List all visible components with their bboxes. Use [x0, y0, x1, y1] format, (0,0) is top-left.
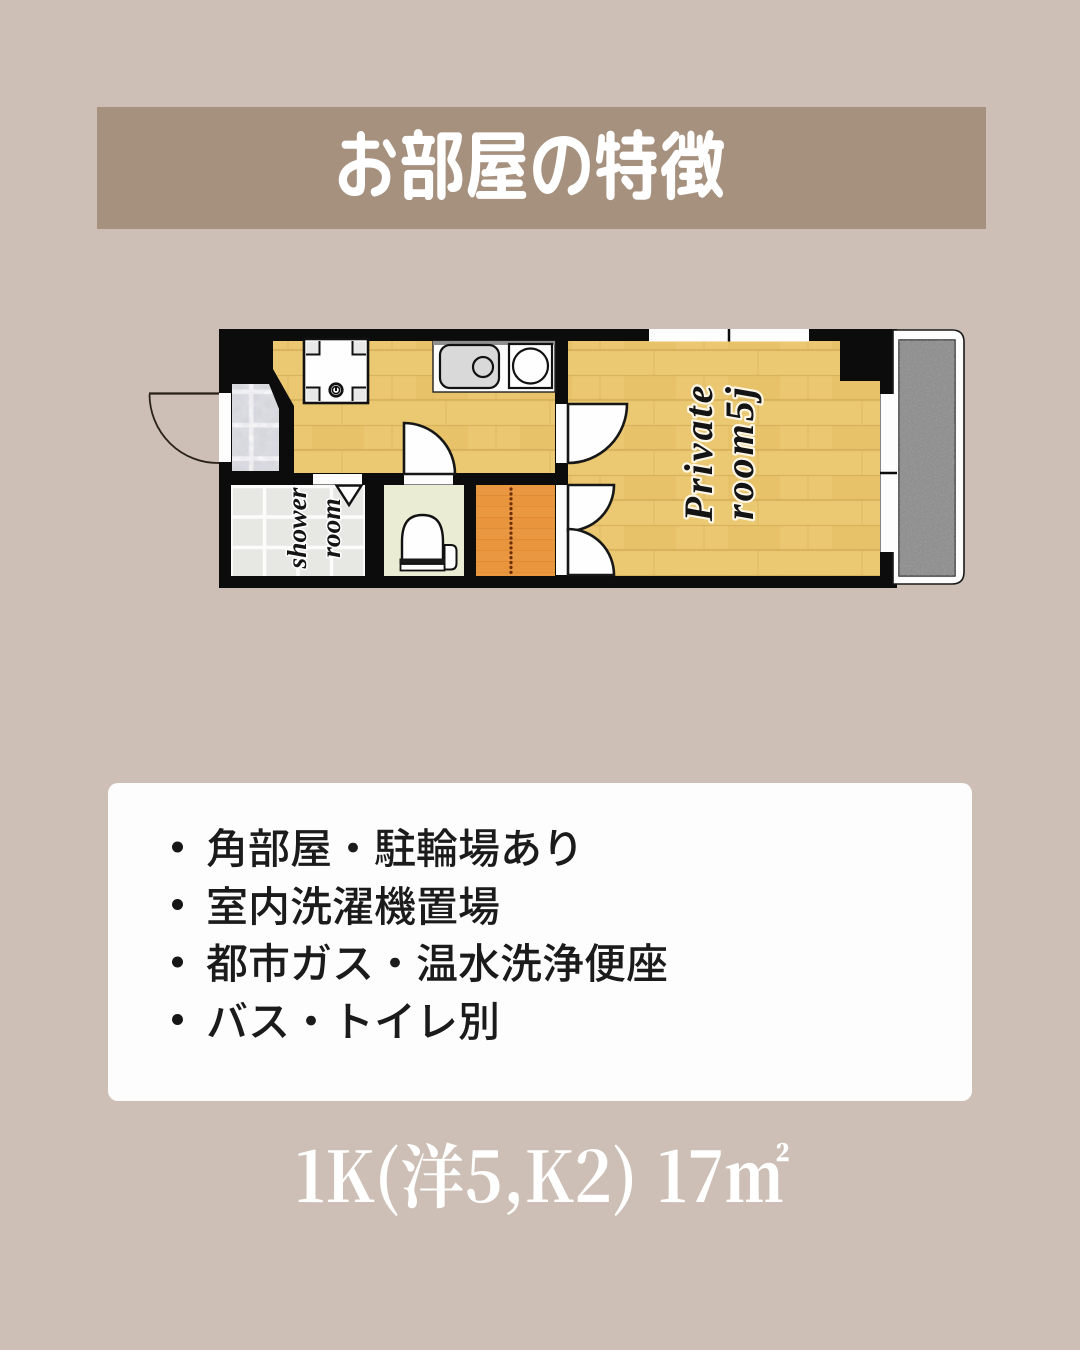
svg-text:room: room — [315, 498, 346, 558]
svg-text:room5j: room5j — [717, 384, 762, 520]
svg-text:shower: shower — [281, 487, 312, 569]
svg-text:Private: Private — [676, 383, 721, 523]
